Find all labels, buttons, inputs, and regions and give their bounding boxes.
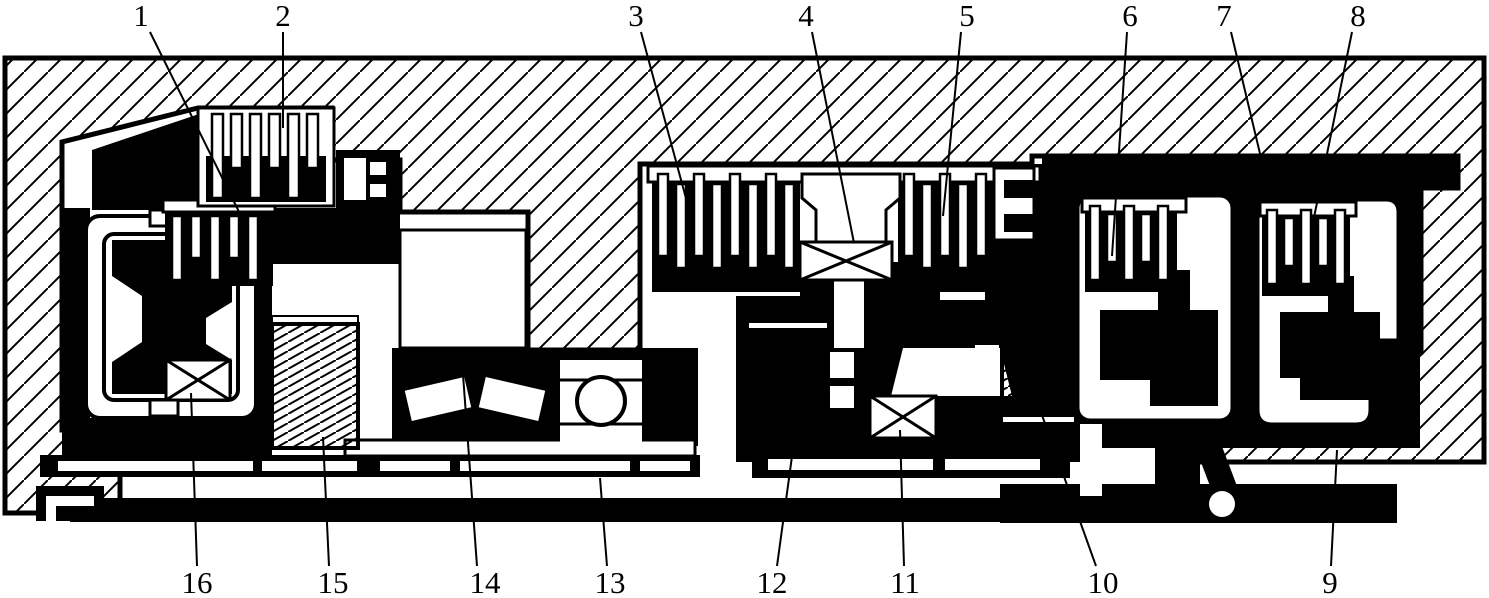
flange-pin (1209, 491, 1235, 517)
clutch-plate (229, 216, 239, 258)
clutch-plate (904, 174, 914, 256)
callout-13-label: 13 (595, 565, 626, 598)
clutch-plate (1090, 206, 1100, 280)
callout-2-label: 2 (275, 0, 291, 33)
mid-channel (834, 280, 864, 348)
ring-notch-bottom (150, 400, 178, 416)
output-sleeve (345, 440, 695, 456)
clutch-plate (1284, 218, 1294, 266)
callout-3-label: 3 (628, 0, 644, 33)
left-carrier-band (258, 208, 400, 264)
gear-12 (748, 330, 828, 448)
clutch-plate (248, 216, 258, 280)
callout-5-label: 5 (959, 0, 975, 33)
callout-4-label: 4 (798, 0, 814, 33)
clutch3-backing (652, 182, 800, 292)
callout-1-label: 1 (133, 0, 149, 33)
clutch-plate (784, 184, 794, 268)
gear12-side-slot-bottom (830, 386, 854, 408)
clutch-plate (231, 114, 242, 168)
clutch-plate (250, 114, 261, 198)
clutch-plate (191, 216, 201, 258)
callout-9-label: 9 (1322, 565, 1338, 598)
clutch-plate (269, 114, 280, 168)
rail-left2-slot-3 (640, 461, 690, 471)
clutch-plate (1124, 206, 1134, 280)
clutch-plate (766, 174, 776, 256)
clutch-plate (1158, 206, 1168, 280)
spline-coupling-key-bottom (370, 184, 386, 197)
clutch-plate (658, 174, 668, 256)
crossed-box-bearing-2 (800, 242, 892, 280)
bottom-left-bracket-inner-black (56, 506, 94, 521)
mid-endcap-slot-top (1004, 180, 1034, 198)
clutch-plate (976, 174, 986, 256)
rail-mid-slot-2 (945, 459, 1040, 470)
clutch-plate (712, 184, 722, 268)
gear12-side-slot-top (830, 352, 854, 378)
gear-10 (1002, 312, 1075, 415)
callout-6-label: 6 (1122, 0, 1138, 33)
callout-7-label: 7 (1216, 0, 1232, 33)
rail-left-slot-1 (58, 461, 253, 471)
clutch-plate (1267, 210, 1277, 284)
rail-left2-slot-2 (460, 461, 630, 471)
clutch-plate (1141, 214, 1151, 262)
clutch-plate (1318, 218, 1328, 266)
clutch-plate (210, 216, 220, 280)
clutch-plate (212, 114, 223, 198)
right-drum-top-band (1042, 156, 1456, 186)
clutch-plate (307, 114, 318, 168)
callout-16-label: 16 (182, 565, 213, 598)
gear-15 (272, 324, 358, 448)
callout-11-label: 11 (890, 565, 920, 598)
clutch-plate (288, 114, 299, 198)
clutch-plate (1301, 210, 1311, 284)
figure-canvas: 12345678910111213141516 (0, 0, 1489, 598)
rail-left2-slot-1 (380, 461, 450, 471)
callout-14-label: 14 (470, 565, 502, 598)
spline-coupling-slot (344, 158, 366, 200)
right-connector-column (1155, 448, 1200, 504)
mid-endcap-slot-bottom (1004, 214, 1034, 232)
crossed-box-bearing-1 (166, 360, 230, 400)
ball-bearing-ball (577, 377, 625, 425)
clutch-plate (676, 184, 686, 268)
clutch-plate (1335, 210, 1345, 284)
clutch-plate (958, 184, 968, 268)
callout-15-label: 15 (318, 565, 349, 598)
carrier-block-14 (400, 230, 526, 348)
clutch-plate (730, 174, 740, 256)
callout-8-label: 8 (1350, 0, 1366, 33)
rail-left-slot-2 (262, 461, 357, 471)
cross-section-diagram: 12345678910111213141516 (0, 0, 1489, 598)
crossed-box-bearing-3 (870, 396, 936, 438)
clutch-plate (748, 184, 758, 268)
callout-10-label: 10 (1088, 565, 1119, 598)
right-channel (1080, 424, 1102, 496)
rail-mid-slot-1 (768, 459, 933, 470)
clutch-plate (922, 184, 932, 268)
clutch-plate (694, 174, 704, 256)
gear10-left-slot (975, 345, 999, 379)
spline-coupling-key-top (370, 162, 386, 175)
clutch-plate (172, 216, 182, 280)
callout-12-label: 12 (757, 565, 788, 598)
